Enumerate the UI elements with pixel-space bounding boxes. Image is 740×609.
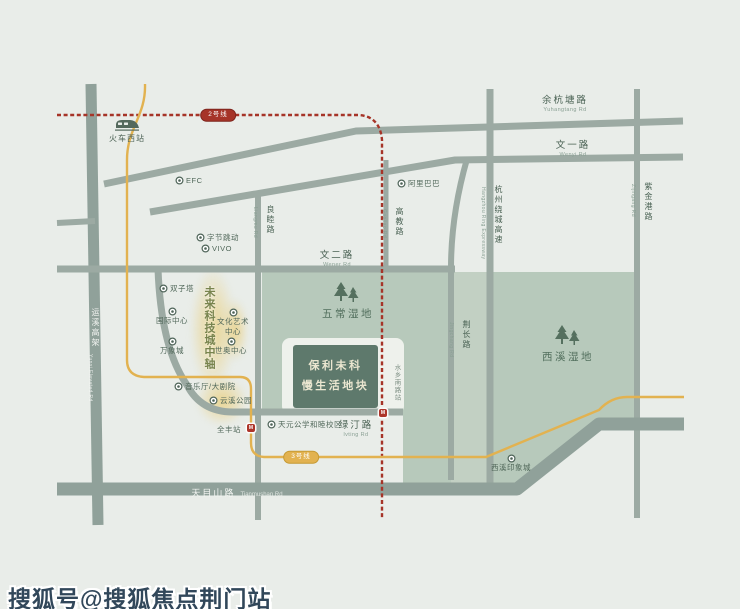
site-block-label: 慢生活地块 xyxy=(302,377,370,397)
poi-dot-icon xyxy=(267,420,276,429)
xixi-wetland-label: 西溪湿地 xyxy=(542,349,594,364)
poi-tianyuan-school: 天元公学和睦校区 xyxy=(265,419,342,430)
quanfeng-station-marker: M xyxy=(247,424,255,432)
map-canvas: 2号线3号线MM保利未科慢生活地块未来科技城中轴火车西站五常湿地西溪湿地余杭塘路… xyxy=(0,0,740,609)
poi-alibaba-label: 阿里巴巴 xyxy=(408,178,440,189)
poi-dot-icon xyxy=(229,308,238,317)
gaojiao-rd-label-en: Gaojiao Rd xyxy=(381,209,387,238)
site-block-label: 保利未科 xyxy=(309,357,363,377)
poi-international-center-label: 国际中心 xyxy=(156,317,188,326)
metro-line-2-badge: 2号线 xyxy=(200,109,236,122)
ring-expressway-label: 杭州绕城高速 xyxy=(493,185,504,245)
poi-dot-icon xyxy=(175,176,184,185)
poi-efc: EFC xyxy=(173,176,203,185)
poi-dot-icon xyxy=(397,179,406,188)
poi-efc-label: EFC xyxy=(186,176,203,185)
poi-dot-icon xyxy=(196,233,205,242)
lvting-rd-label-en: lvting Rd xyxy=(339,432,374,438)
trees-icon xyxy=(553,324,583,348)
site-block: 保利未科慢生活地块 xyxy=(293,345,378,408)
poi-culture-art-center: 文化艺术中心 xyxy=(217,307,249,336)
tianmushan-rd-label-en: Tianmushan Rd xyxy=(240,492,282,498)
yunxi-elevated-label: 运溪高架 xyxy=(90,308,101,348)
poi-shiao-center: 世奥中心 xyxy=(215,336,247,356)
poi-yunxi-park-label: 云溪公园 xyxy=(220,395,252,406)
shuixiang-south-rd-station-label: 水乡南路站 xyxy=(391,364,401,402)
zijingang-rd-label: 紫金港路 xyxy=(643,182,654,222)
wener-rd-label: 文二路Wener Rd xyxy=(320,247,355,268)
poi-culture-art-center-label: 文化艺术 xyxy=(217,318,249,327)
lvting-rd-label-zh: 绿汀路 xyxy=(339,417,374,431)
watermark: 搜狐号@搜狐焦点荆门站 xyxy=(8,580,271,609)
poi-tianyuan-school-label: 天元公学和睦校区 xyxy=(278,419,342,430)
yuhangtang-rd-label: 余杭塘路Yuhangtang Rd xyxy=(542,92,588,113)
poi-dot-icon xyxy=(168,307,177,316)
metro-station-icon: M xyxy=(381,411,385,416)
poi-bytedance-label: 字节跳动 xyxy=(207,232,239,243)
poi-shiao-center-label: 世奥中心 xyxy=(215,347,247,356)
wenyi-rd-label: 文一路Wenyi Rd xyxy=(556,137,591,158)
jingchang-rd-label-en: Jingchang Rd xyxy=(448,322,454,357)
poi-culture-art-center-label: 中心 xyxy=(225,328,241,337)
poi-yunxi-park: 云溪公园 xyxy=(207,395,252,406)
metro-line-3-badge: 3号线 xyxy=(283,451,319,464)
yuhangtang-rd-label-zh: 余杭塘路 xyxy=(542,92,588,106)
poi-alibaba: 阿里巴巴 xyxy=(395,178,440,189)
poi-dot-icon xyxy=(209,396,218,405)
trees-icon xyxy=(332,281,362,305)
poi-dot-icon xyxy=(201,244,210,253)
train-icon xyxy=(114,117,140,132)
yuhangtang-rd-label-en: Yuhangtang Rd xyxy=(542,107,588,113)
poi-xixi-impression-city: 西溪印象城 xyxy=(491,453,531,473)
poi-mixc-label: 万象城 xyxy=(160,347,184,356)
poi-dot-icon xyxy=(174,382,183,391)
wenyi-rd-label-en: Wenyi Rd xyxy=(556,152,591,158)
axis-label: 未来科技城中轴 xyxy=(201,286,217,370)
lvting-rd-label: 绿汀路lvting Rd xyxy=(339,417,374,438)
map-labels-layer: 2号线3号线MM保利未科慢生活地块未来科技城中轴火车西站五常湿地西溪湿地余杭塘路… xyxy=(0,0,740,609)
poi-dot-icon xyxy=(227,337,236,346)
wener-rd-label-zh: 文二路 xyxy=(320,247,355,261)
poi-twin-towers-label: 双子塔 xyxy=(170,283,194,294)
wuchang-wetland-label: 五常湿地 xyxy=(322,306,374,321)
poi-concert-hall-label: 音乐厅/大剧院 xyxy=(185,381,236,392)
poi-xixi-impression-city-label: 西溪印象城 xyxy=(491,464,531,473)
wener-rd-label-en: Wener Rd xyxy=(320,262,355,268)
metro-station-icon: M xyxy=(249,426,253,431)
gaojiao-rd-label: 高教路 xyxy=(394,207,405,237)
poi-dot-icon xyxy=(168,337,177,346)
poi-vivo-label: VIVO xyxy=(212,244,232,253)
train-west-station: 火车西站 xyxy=(109,116,145,144)
yunxi-elevated-label-en: Yunxi Elevated Rd xyxy=(87,354,93,402)
poi-mixc: 万象城 xyxy=(160,336,184,356)
tianmushan-rd-label: 天目山路Tianmushan Rd xyxy=(191,483,282,501)
poi-dot-icon xyxy=(507,454,516,463)
shuixiang-south-rd-station-marker: M xyxy=(379,409,387,417)
train-west-station-label: 火车西站 xyxy=(109,133,145,144)
liangmu-rd-label-en: Liangmu Rd xyxy=(252,207,258,238)
liangmu-rd-label: 良睦路 xyxy=(265,205,276,235)
poi-vivo: VIVO xyxy=(199,244,232,253)
jingchang-rd-label: 荆长路 xyxy=(461,320,472,350)
poi-dot-icon xyxy=(159,284,168,293)
poi-twin-towers: 双子塔 xyxy=(157,283,194,294)
ring-expressway-label-en: Hangzhou Ring Expressway xyxy=(480,187,486,259)
poi-quanfeng-station: 全丰站 xyxy=(185,424,241,435)
wenyi-rd-label-zh: 文一路 xyxy=(556,137,591,151)
tianmushan-rd-label-zh: 天目山路 xyxy=(191,488,235,498)
poi-bytedance: 字节跳动 xyxy=(194,232,239,243)
poi-international-center: 国际中心 xyxy=(156,306,188,326)
zijingang-rd-label-en: Zijingang Rd xyxy=(630,184,636,217)
poi-concert-hall: 音乐厅/大剧院 xyxy=(172,381,236,392)
